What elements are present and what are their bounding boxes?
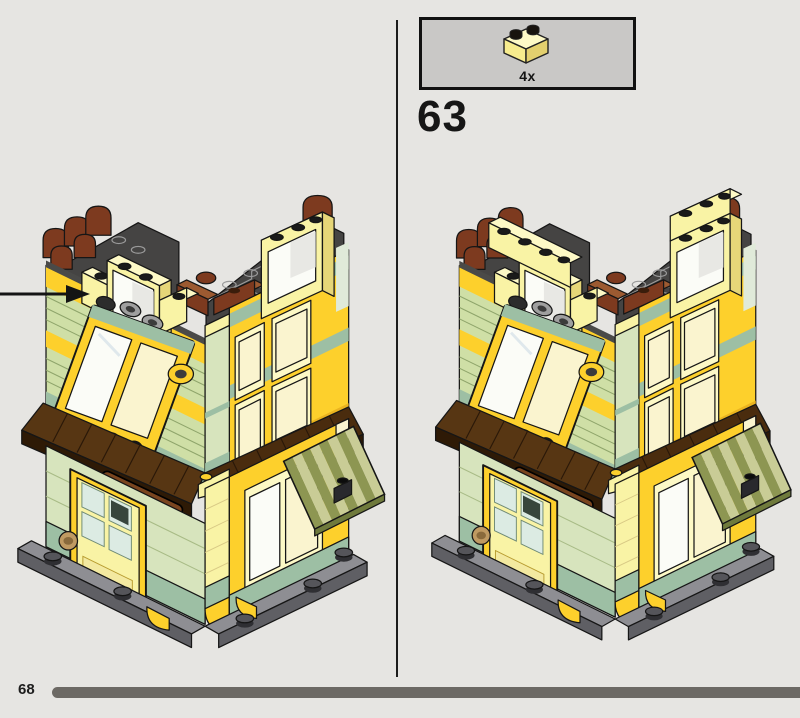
models-canvas	[0, 0, 800, 718]
parts-callout-box: 4x	[419, 17, 636, 90]
page-number: 68	[18, 681, 35, 698]
building-illustration-right	[432, 189, 791, 640]
building-illustration-left	[18, 196, 385, 648]
part-quantity-label: 4x	[519, 68, 536, 84]
step-number: 63	[417, 92, 468, 142]
progress-bar	[52, 687, 800, 698]
yellow-1x2-brick-icon	[496, 23, 560, 67]
instruction-page: { "step": { "number": "63" }, "callout":…	[0, 0, 800, 718]
step-divider-line	[396, 20, 398, 677]
